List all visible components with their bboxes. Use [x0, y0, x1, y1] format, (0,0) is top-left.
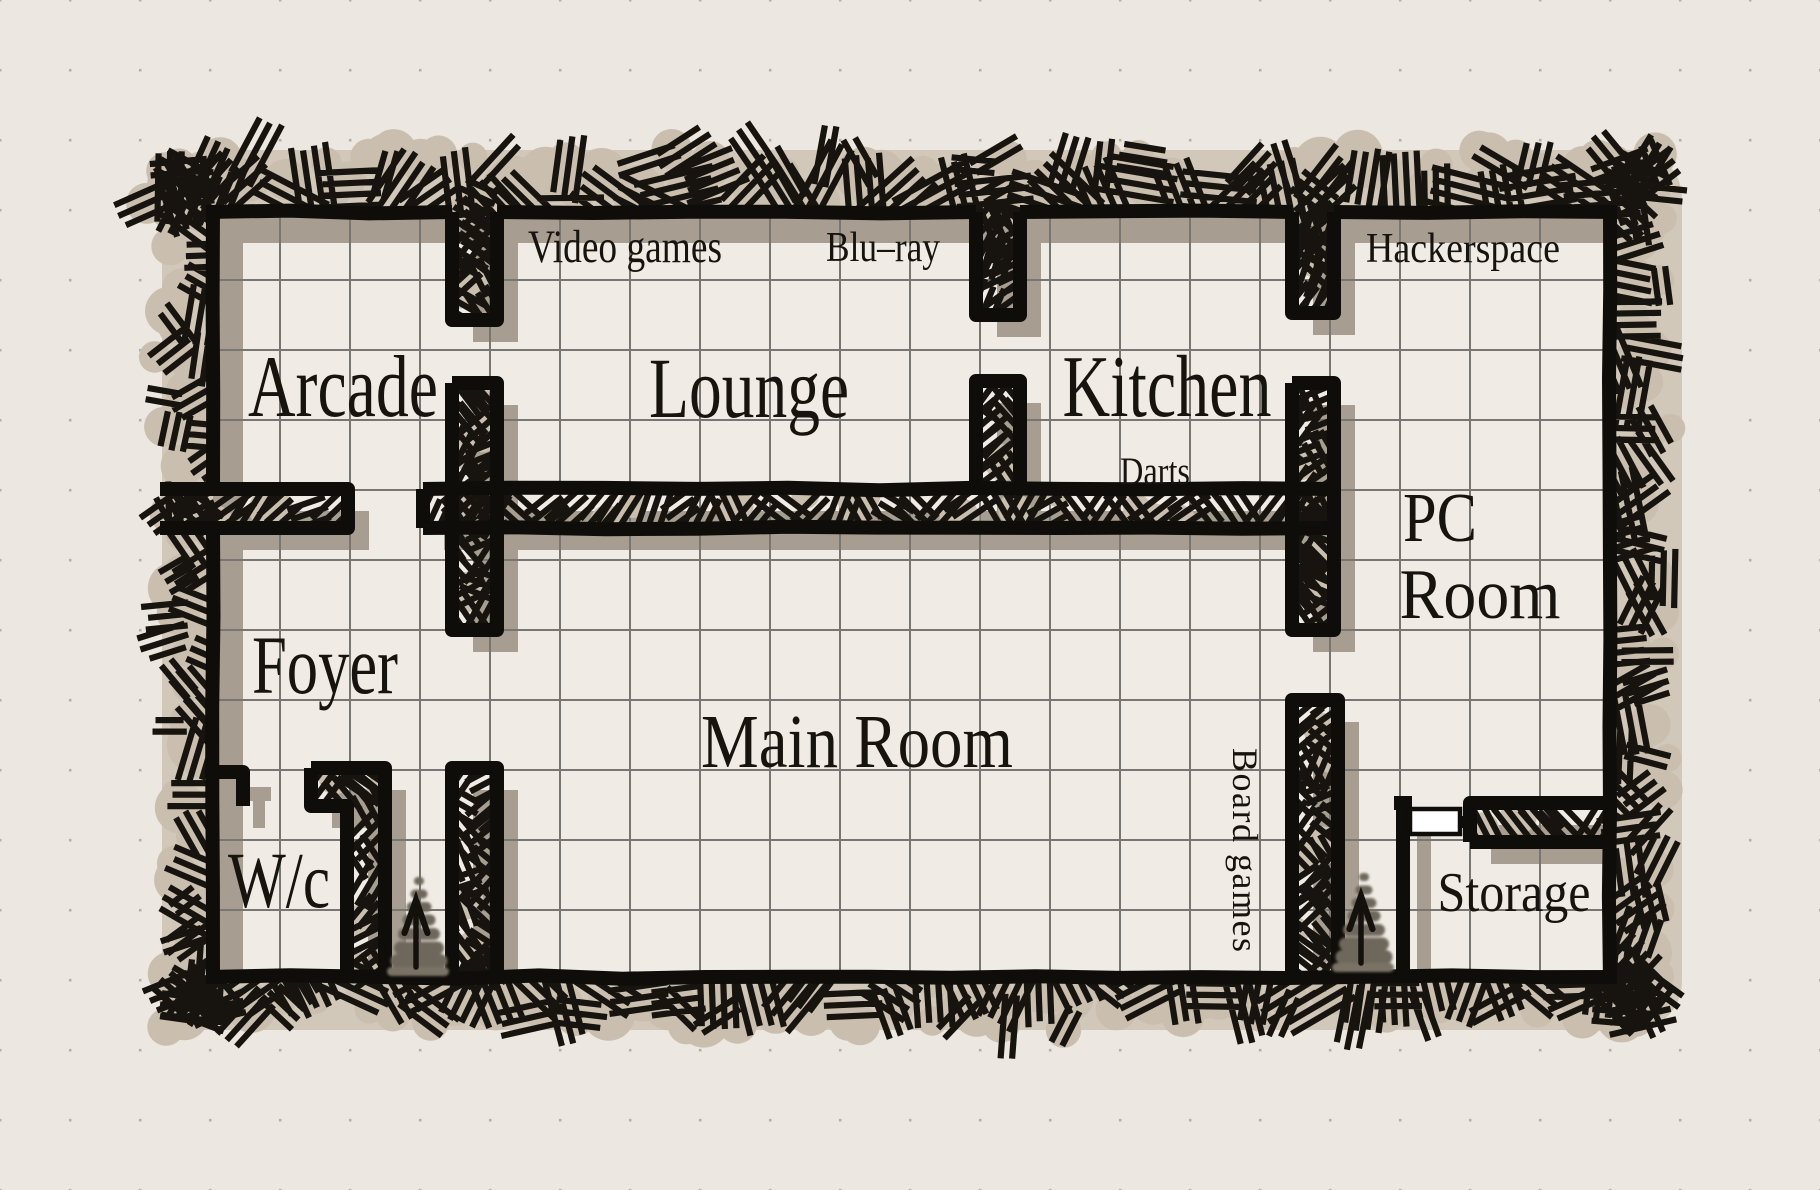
svg-text:Arcade: Arcade	[248, 339, 438, 436]
svg-text:Blu–ray: Blu–ray	[826, 225, 940, 271]
svg-text:Room: Room	[1400, 556, 1561, 634]
svg-text:Main Room: Main Room	[701, 700, 1013, 784]
svg-text:Darts: Darts	[1120, 450, 1190, 493]
svg-text:Lounge: Lounge	[649, 340, 849, 436]
svg-text:Storage: Storage	[1438, 862, 1591, 924]
svg-text:PC: PC	[1403, 480, 1477, 557]
svg-text:Video games: Video games	[528, 221, 722, 273]
svg-text:Board games: Board games	[1225, 748, 1265, 952]
svg-text:Hackerspace: Hackerspace	[1366, 226, 1560, 272]
svg-text:Foyer: Foyer	[252, 619, 398, 711]
svg-text:W/c: W/c	[228, 838, 330, 925]
svg-text:Kitchen: Kitchen	[1063, 339, 1272, 436]
